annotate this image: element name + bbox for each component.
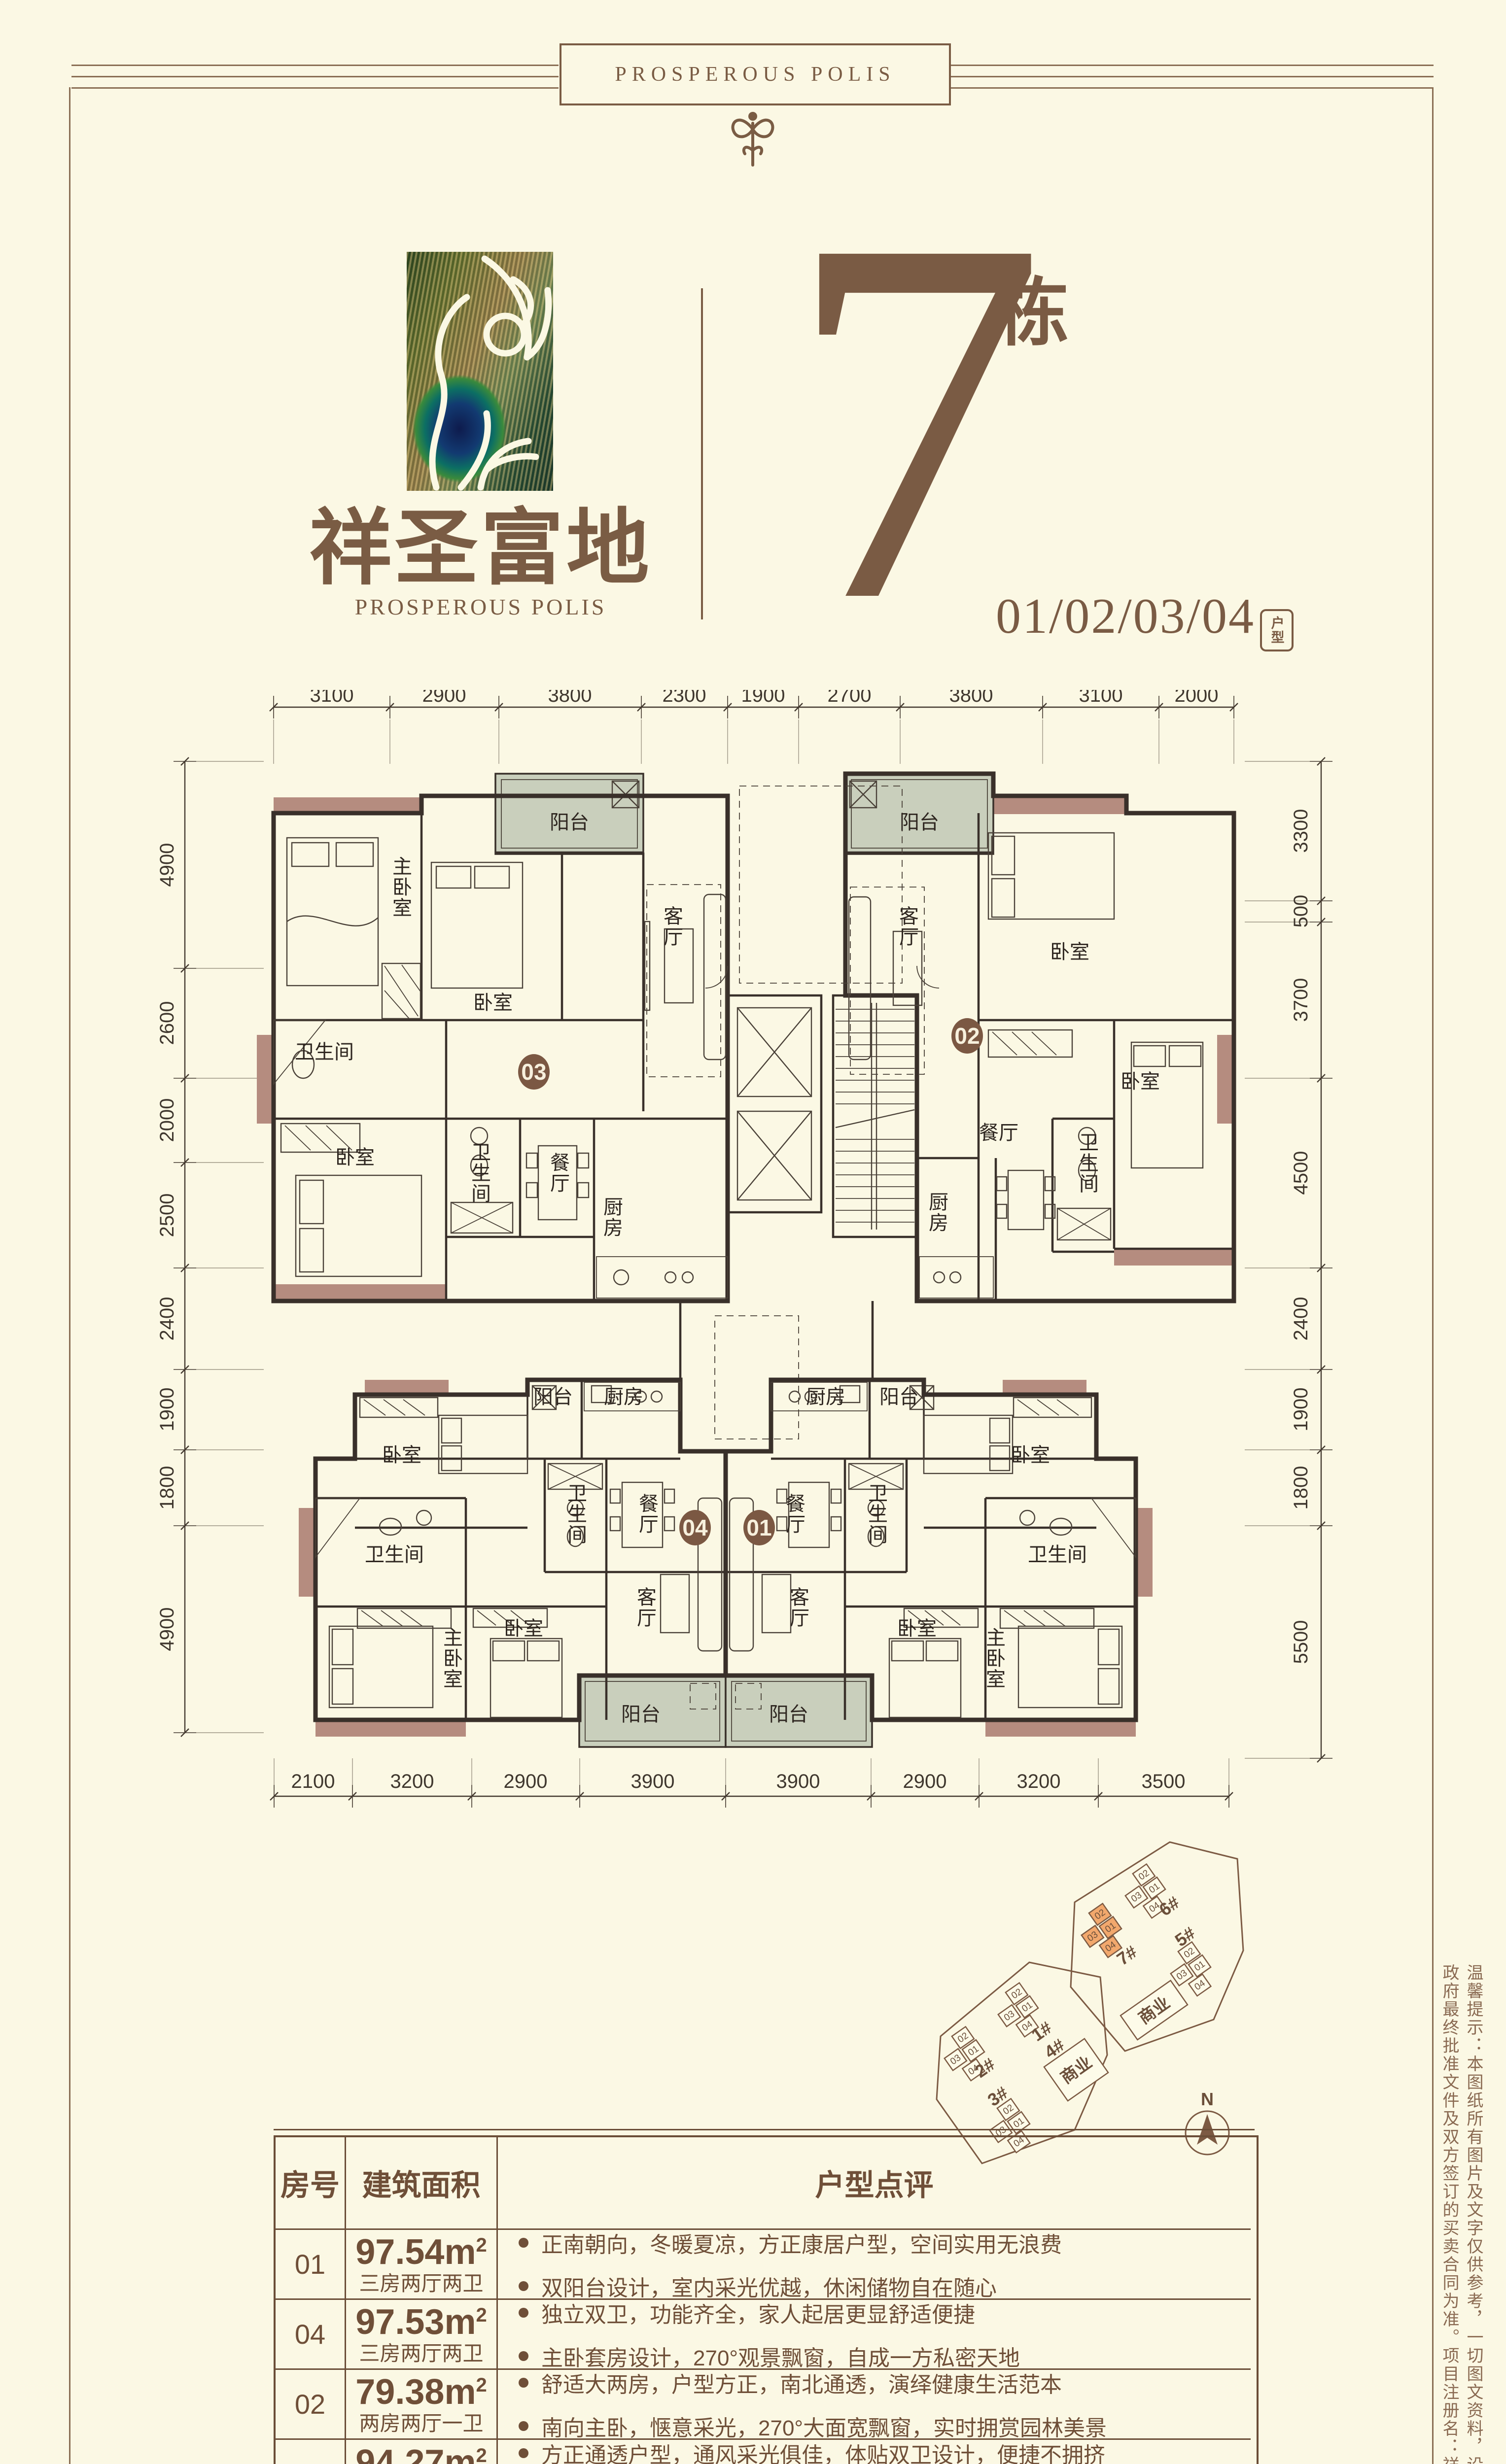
row-04-no: 04 (276, 2300, 346, 2370)
svg-text:3800: 3800 (548, 690, 592, 706)
seal-badge: 户型 (1260, 609, 1294, 651)
row-03-no: 03 (276, 2440, 346, 2464)
table-header-area: 建筑面积 (346, 2137, 498, 2230)
svg-text:3200: 3200 (1017, 1771, 1061, 1792)
dimension-chain-bottom: 2100 3200 2900 3900 3900 2900 3200 3500 (270, 1758, 1233, 1808)
room-label-dining: 餐厅 (547, 1152, 569, 1194)
row-03-points: 方正通透户型，通风采光俱佳，体贴双卫设计，便捷不拥挤 主卧套房结构，与次卧均配备… (498, 2440, 1251, 2464)
frame-line (71, 87, 559, 89)
logo-feather-strokes (407, 252, 553, 491)
site-map: 02 03 01 04 7# 02 03 01 04 6# 02 03 01 0… (912, 1823, 1257, 2168)
room-label-bedroom: 卧室 (335, 1147, 375, 1168)
svg-text:1900: 1900 (156, 1388, 178, 1432)
svg-text:1800: 1800 (156, 1466, 178, 1510)
svg-text:2100: 2100 (291, 1771, 335, 1792)
room-label-kitchen: 厨房 (604, 1386, 643, 1408)
dimension-chain-left: 4900 2600 2000 2500 2400 1900 1800 4900 (156, 757, 264, 1737)
svg-text:3500: 3500 (1142, 1771, 1186, 1792)
accent-bays (257, 797, 1234, 1737)
svg-text:1900: 1900 (1290, 1388, 1312, 1432)
room-label-bedroom: 卧室 (504, 1618, 543, 1640)
header-brand-box: PROSPEROUS POLIS (560, 43, 951, 105)
furniture (274, 833, 1203, 1717)
svg-text:2300: 2300 (663, 690, 706, 706)
svg-text:2000: 2000 (1175, 690, 1219, 706)
room-label-master: 主卧室 (983, 1627, 1005, 1689)
building-suffix: 栋 (995, 276, 1069, 350)
room-label-balcony: 阳台 (533, 1386, 573, 1408)
room-label-living: 客厅 (661, 906, 683, 947)
floor-plan: 3100 2900 3800 2300 1900 2700 3800 3100 … (148, 690, 1341, 1823)
unit-bubbles: 03 02 04 01 (518, 1018, 983, 1545)
svg-text:500: 500 (1290, 895, 1312, 928)
frame-line (71, 65, 559, 66)
svg-text:3700: 3700 (1290, 978, 1312, 1022)
room-label-balcony: 阳台 (900, 812, 939, 833)
room-label-living: 客厅 (634, 1587, 656, 1628)
row-02-points: 舒适大两房，户型方正，南北通透，演绎健康生活范本 南向主卧，惬意采光，270°大… (498, 2370, 1251, 2440)
frame-line (71, 76, 559, 77)
room-label-bath: 卫生间 (865, 1483, 887, 1545)
room-label-balcony: 阳台 (550, 812, 589, 833)
room-label-bath: 卫生间 (564, 1483, 586, 1545)
unit-bubble-01: 01 (746, 1515, 771, 1540)
room-label-living: 客厅 (787, 1587, 809, 1628)
room-label-bedroom: 卧室 (1050, 941, 1089, 963)
row-02-area: 79.38m2 两房两厅一卫 (346, 2370, 498, 2440)
ornament-icon (723, 103, 782, 168)
room-label-dining: 餐厅 (979, 1122, 1018, 1144)
unit-bubble-04: 04 (682, 1515, 708, 1540)
logo-name-en: PROSPEROUS POLIS (306, 594, 656, 620)
unit-bubble-03: 03 (521, 1059, 546, 1085)
svg-text:3900: 3900 (631, 1771, 675, 1792)
room-label-balcony: 阳台 (621, 1704, 661, 1725)
frame-line (948, 76, 1434, 77)
unit-numbers: 01/02/03/04 (996, 591, 1255, 642)
svg-text:4500: 4500 (1290, 1151, 1312, 1195)
table-top-rule (274, 2129, 1255, 2130)
row-03-area: 94.27m2 三房两厅两卫 (346, 2440, 498, 2464)
room-label-dining: 餐厅 (783, 1493, 805, 1535)
svg-text:3200: 3200 (390, 1771, 434, 1792)
row-01-points: 正南朝向，冬暖夏凉，方正康居户型，空间实用无浪费 双阳台设计，室内采光优越，休闲… (498, 2230, 1251, 2300)
svg-text:3100: 3100 (1079, 690, 1123, 706)
room-label-dining: 餐厅 (636, 1493, 658, 1535)
seal-text: 户型 (1267, 616, 1287, 645)
logo-name-cn: 祥圣富地 (306, 508, 656, 590)
frame-border-left (69, 87, 70, 2464)
svg-text:3900: 3900 (776, 1771, 820, 1792)
room-label-master: 主卧室 (389, 856, 411, 918)
svg-text:2900: 2900 (903, 1771, 947, 1792)
room-label-living: 客厅 (896, 906, 918, 947)
room-label-kitchen: 厨房 (600, 1197, 623, 1238)
spec-table: 房号 建筑面积 户型点评 01 97.54m2 三房两厅两卫 正南朝向，冬暖夏凉… (274, 2135, 1259, 2464)
room-label-master: 主卧室 (440, 1627, 462, 1689)
room-label-bedroom: 卧室 (1011, 1444, 1050, 1466)
row-02-no: 02 (276, 2370, 346, 2440)
svg-text:3300: 3300 (1290, 809, 1312, 853)
sitemap-commercial-right: 商业 (1121, 1981, 1188, 2040)
table-header-comment: 户型点评 (498, 2137, 1251, 2230)
svg-text:2400: 2400 (156, 1297, 178, 1341)
dimension-chain-top: 3100 2900 3800 2300 1900 2700 3800 3100 … (270, 690, 1238, 764)
room-label-bath: 卫生间 (468, 1142, 490, 1204)
svg-text:1800: 1800 (1290, 1466, 1312, 1510)
room-label-bedroom: 卧室 (897, 1618, 937, 1640)
svg-text:1900: 1900 (741, 690, 785, 706)
frame-border-right (1432, 87, 1434, 2464)
svg-text:4900: 4900 (156, 843, 178, 887)
row-01-no: 01 (276, 2230, 346, 2300)
disclaimer-text: 温馨提示：本图纸所有图片及文字仅供参考，一切图文资料，设计规划以政府最终批准文件… (1437, 1964, 1486, 2464)
svg-text:3800: 3800 (949, 690, 993, 706)
svg-text:5500: 5500 (1290, 1620, 1312, 1664)
room-label-bath: 卫生间 (295, 1041, 354, 1063)
row-01-area: 97.54m2 三房两厅两卫 (346, 2230, 498, 2300)
logo-title-divider (701, 288, 703, 619)
room-label-bedroom: 卧室 (473, 992, 513, 1014)
svg-text:2900: 2900 (504, 1771, 548, 1792)
room-label-bath: 卫生间 (365, 1544, 424, 1566)
svg-text:2900: 2900 (422, 690, 466, 706)
svg-text:3100: 3100 (310, 690, 354, 706)
room-label-bedroom: 卧室 (382, 1444, 421, 1466)
room-label-bedroom: 卧室 (1121, 1071, 1160, 1093)
room-label-balcony: 阳台 (879, 1386, 919, 1408)
svg-text:2600: 2600 (156, 1001, 178, 1045)
svg-text:2500: 2500 (156, 1194, 178, 1237)
svg-text:6#: 6# (1156, 1892, 1183, 1920)
room-label-balcony: 阳台 (769, 1704, 808, 1725)
svg-text:N: N (1201, 2089, 1214, 2109)
row-04-area: 97.53m2 三房两厅两卫 (346, 2300, 498, 2370)
room-label-bath: 卫生间 (1028, 1544, 1087, 1566)
frame-line (948, 65, 1434, 66)
room-label-kitchen: 厨房 (926, 1192, 948, 1233)
room-label-kitchen: 厨房 (806, 1386, 845, 1408)
row-04-points: 独立双卫，功能齐全，家人起居更显舒适便捷 主卧套房设计，270°观景飘窗，自成一… (498, 2300, 1251, 2370)
svg-text:4900: 4900 (156, 1608, 178, 1651)
table-header-no: 房号 (276, 2137, 346, 2230)
dimension-chain-right: 3300 500 3700 4500 2400 1900 1800 5500 (1245, 757, 1332, 1762)
svg-text:2400: 2400 (1290, 1297, 1312, 1341)
frame-line (948, 87, 1434, 89)
header-brand-text: PROSPEROUS POLIS (615, 63, 895, 86)
brochure-page: PROSPEROUS POLIS 祥圣富地 PROSPEROUS POLIS 7… (0, 0, 1506, 2464)
unit-bubble-02: 02 (954, 1023, 980, 1049)
room-label-bath: 卫生间 (1076, 1132, 1098, 1194)
svg-text:2000: 2000 (156, 1098, 178, 1142)
svg-text:2700: 2700 (828, 690, 872, 706)
